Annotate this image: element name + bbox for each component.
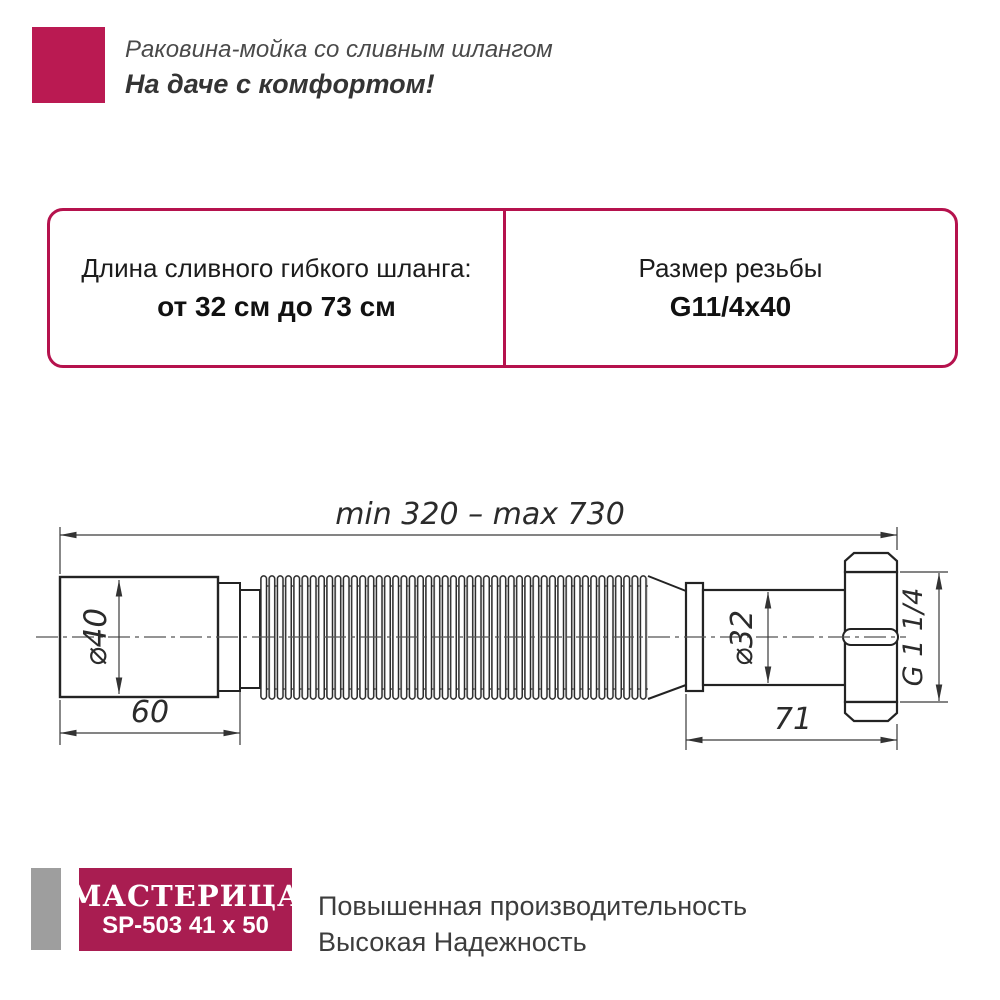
dim-thread-size: G 1 1/4 [898, 588, 929, 687]
brand-logo-square [32, 27, 105, 103]
header: Раковина-мойка со сливным шлангом На дач… [125, 34, 553, 102]
dim-right-length: 71 [774, 702, 812, 737]
tagline-line2: Высокая Надежность [318, 924, 747, 960]
product-subtitle: Раковина-мойка со сливным шлангом [125, 34, 553, 66]
infographic-page: { "header": { "subtitle": "Раковина-мойк… [0, 0, 1000, 1000]
product-slogan: На даче с комфортом! [125, 66, 553, 102]
dim-total-length: min 320 – max 730 [335, 497, 625, 532]
thread-size-label: Размер резьбы [639, 253, 823, 284]
footer-gray-bar [31, 868, 61, 950]
nut-top-chamfer [845, 553, 897, 572]
footer-tagline: Повышенная производительность Высокая На… [318, 888, 747, 960]
brand-box: МАСТЕРИЦА SP-503 41 x 50 [79, 868, 292, 951]
nut-bottom-chamfer [845, 702, 897, 721]
spec-box: Длина сливного гибкого шланга: от 32 см … [47, 208, 958, 368]
spec-cell-length: Длина сливного гибкого шланга: от 32 см … [50, 211, 503, 365]
hose-length-label: Длина сливного гибкого шланга: [81, 253, 471, 284]
brand-name: МАСТЕРИЦА [69, 881, 301, 911]
spec-cell-thread: Размер резьбы G11/4x40 [503, 211, 955, 365]
hose-length-value: от 32 см до 73 см [157, 291, 396, 323]
neck-section [240, 590, 260, 688]
dim-diameter-left: ⌀40 [78, 608, 114, 666]
tagline-line1: Повышенная производительность [318, 888, 747, 924]
dim-left-length: 60 [131, 695, 169, 730]
thread-size-value: G11/4x40 [670, 291, 791, 323]
brand-model-number: SP-503 41 x 50 [102, 913, 269, 939]
dim-diameter-right: ⌀32 [725, 610, 760, 666]
technical-drawing: min 320 – max 730 ⌀40 60 ⌀32 71 G 1 1/4 [0, 480, 1000, 800]
